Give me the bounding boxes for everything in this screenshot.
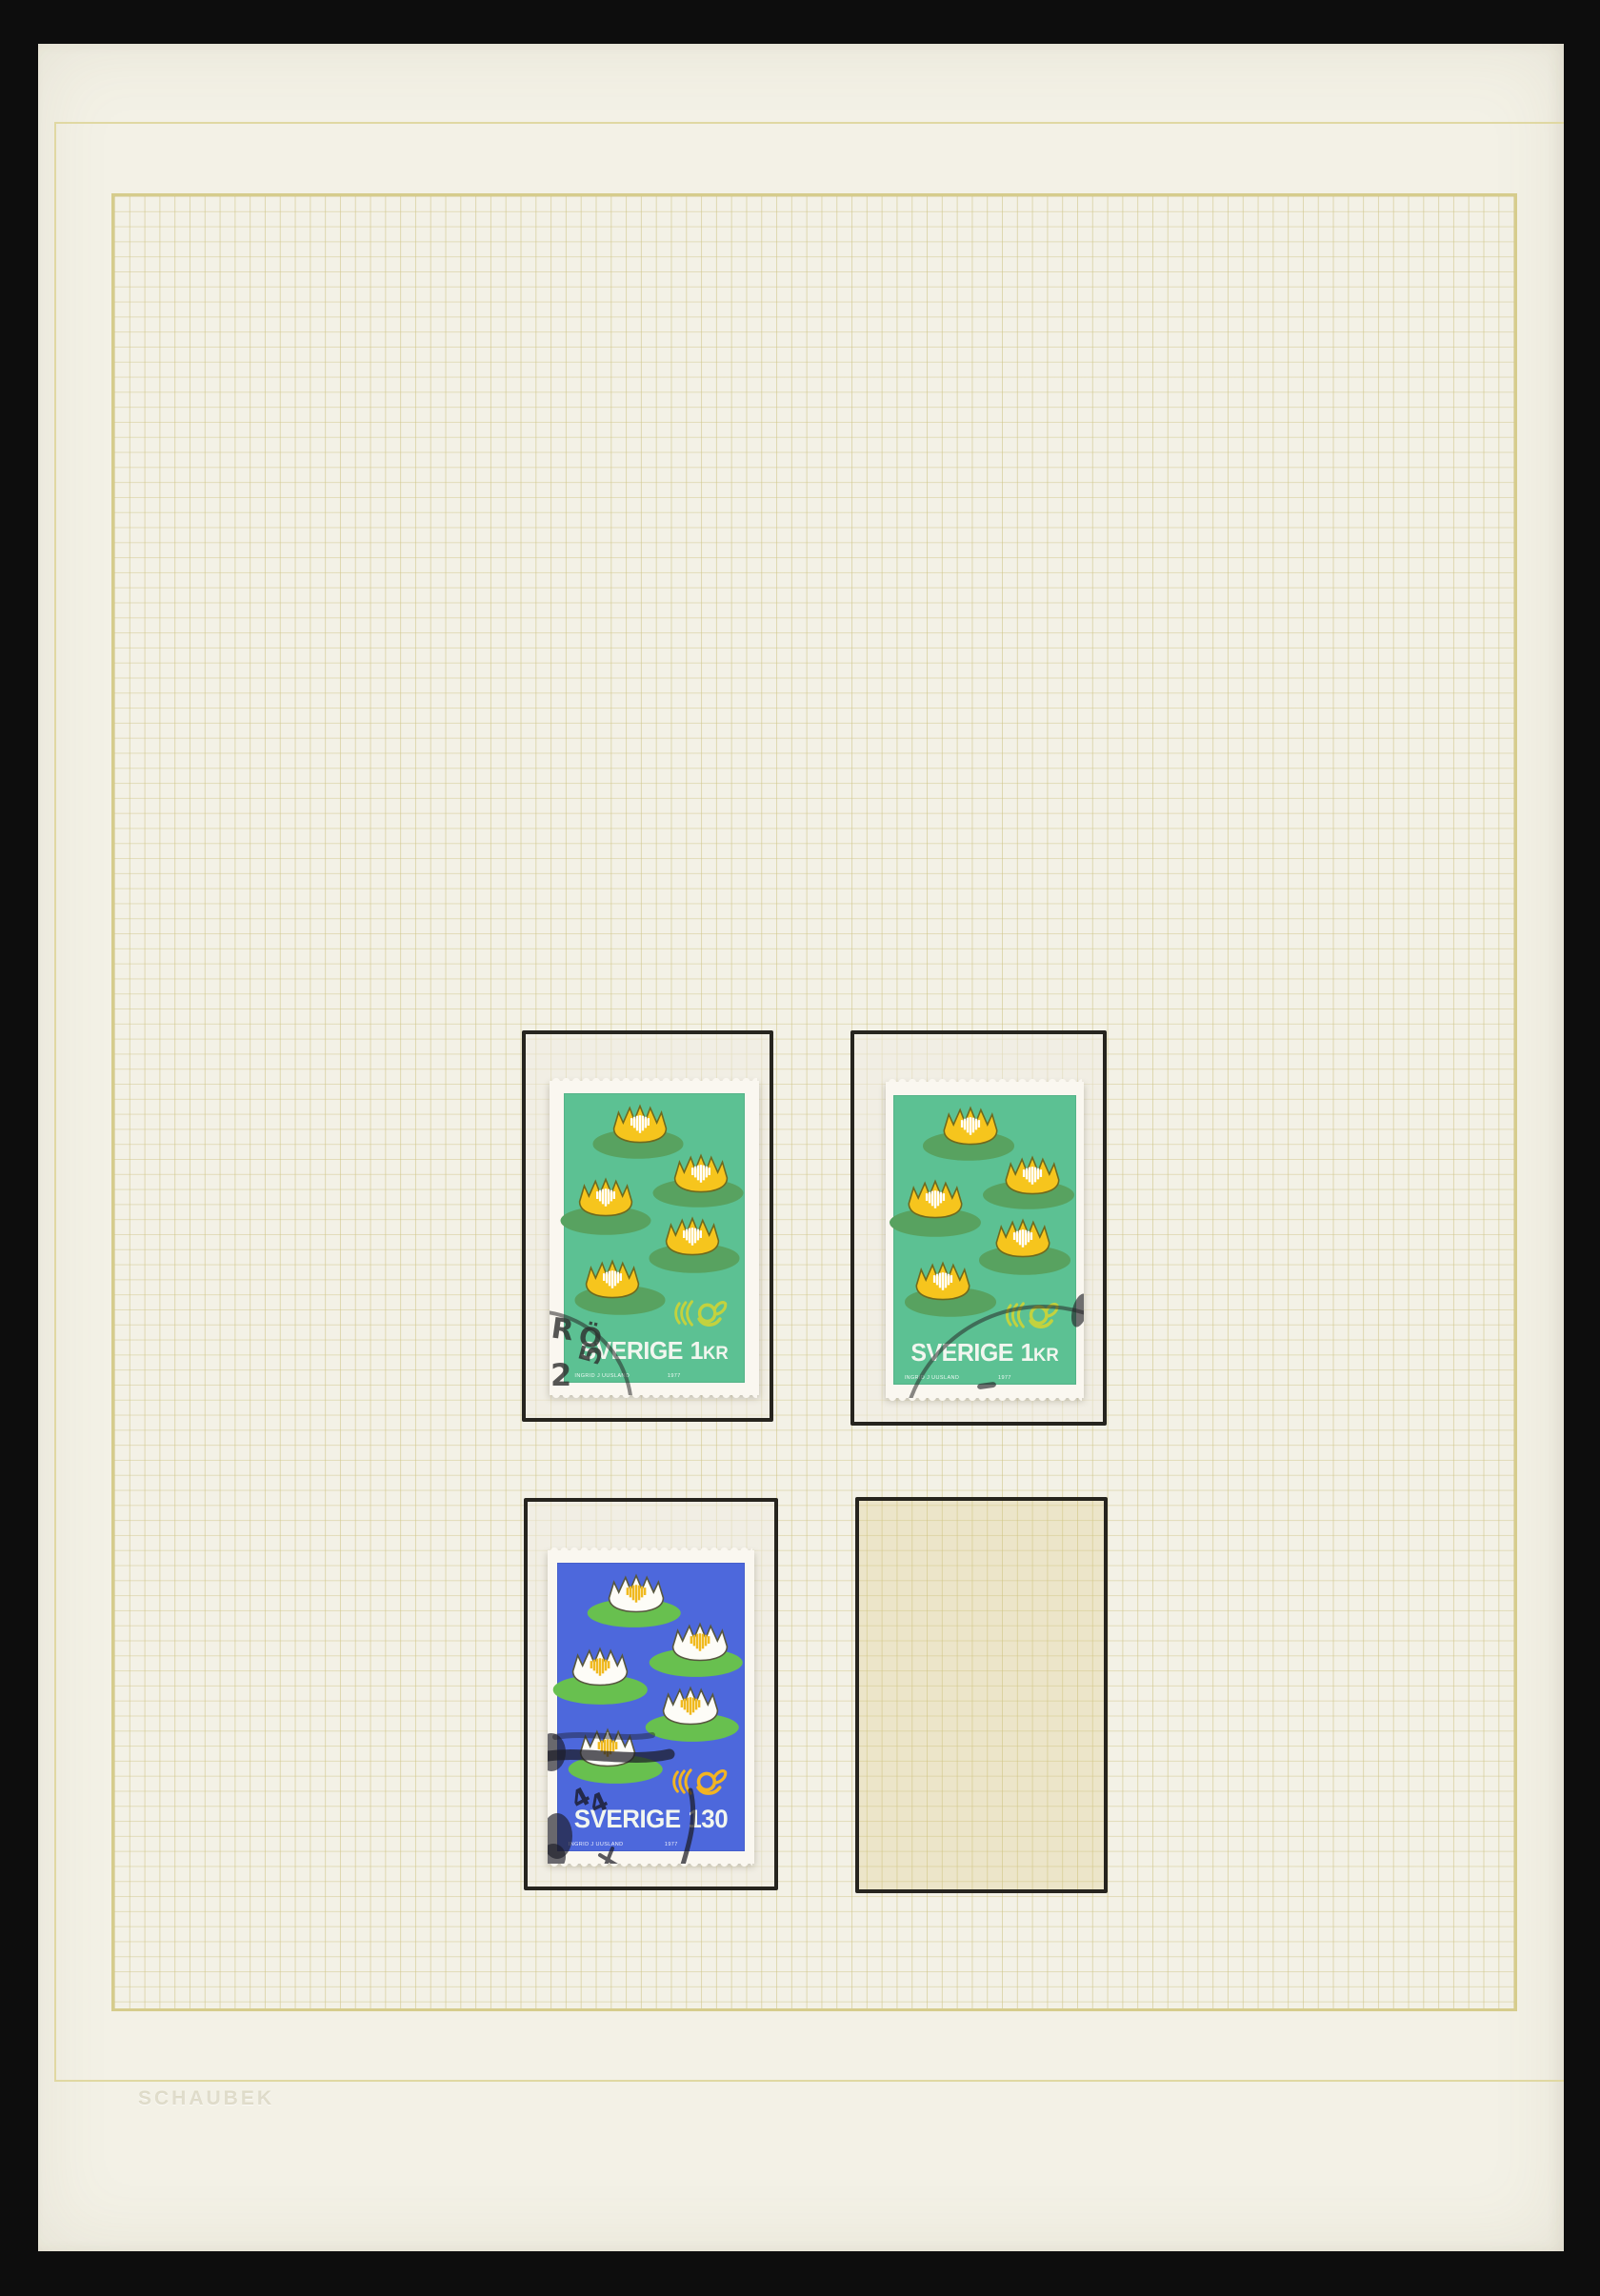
album-brand-emboss: SCHAUBEK [138,2087,274,2110]
postmark [886,1082,1084,1398]
postmark-digit: 2 [550,1357,571,1393]
album-page: SCHAUBEK SVERIGE [38,44,1564,2251]
stamp-mount-bottom-right-empty [855,1497,1108,1893]
postmark: R Ö 2 5 [550,1081,759,1395]
stamp-mount-top-right: SVERIGE 1KR INGRID J UUSLAND 1977 [850,1030,1107,1426]
postmark: 4 4 [548,1550,754,1864]
stamp-green-1kr-right: SVERIGE 1KR INGRID J UUSLAND 1977 [886,1082,1084,1398]
mount-film [859,1501,1104,1889]
stamp-mount-bottom-left: SVERIGE 130 INGRID J UUSLAND 1977 [524,1498,778,1890]
stamp-blue-130: SVERIGE 130 INGRID J UUSLAND 1977 [548,1550,754,1864]
scanned-album-photo: SCHAUBEK SVERIGE [0,0,1600,2296]
stamp-green-1kr-left: SVERIGE 1KR INGRID J UUSLAND 1977 R Ö 2 … [550,1081,759,1395]
stamp-mount-top-left: SVERIGE 1KR INGRID J UUSLAND 1977 R Ö 2 … [522,1030,773,1422]
graph-grid-area [111,193,1517,2011]
postmark-strokes [548,1550,754,1864]
postmark-letter: R [550,1312,575,1348]
